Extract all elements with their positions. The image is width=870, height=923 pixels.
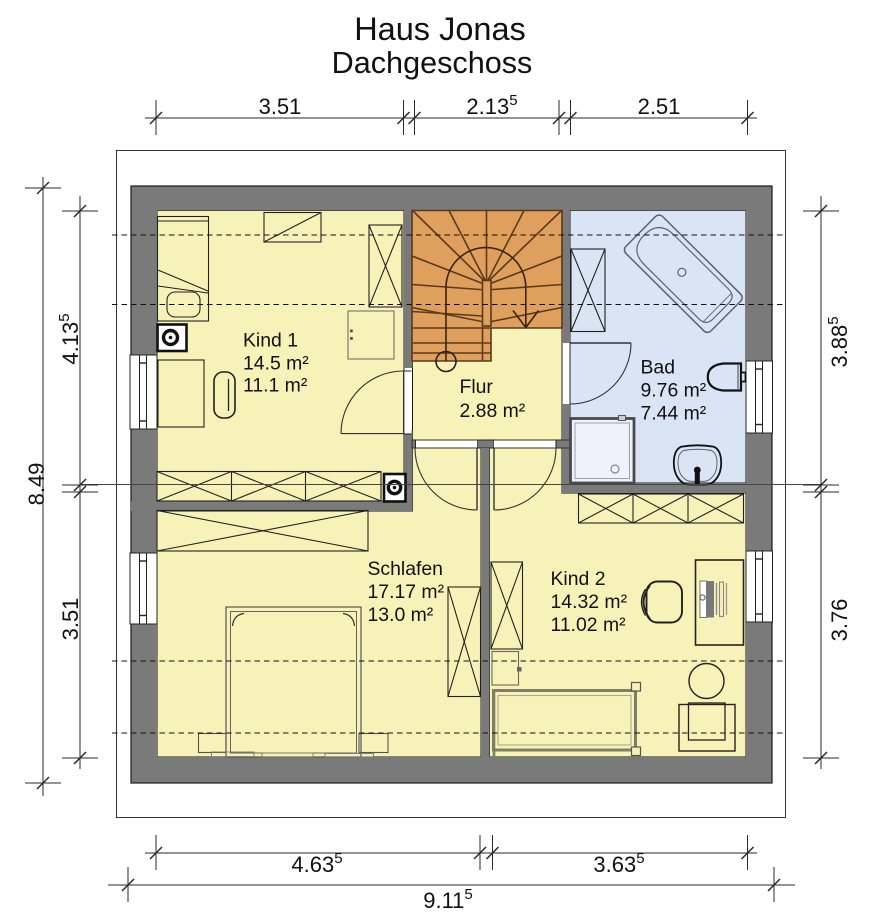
svg-text:Kind 2: Kind 2 (551, 568, 606, 590)
svg-text:7.44 m²: 7.44 m² (641, 403, 707, 425)
svg-text:17.17 m²: 17.17 m² (368, 581, 445, 603)
svg-text:9.76 m²: 9.76 m² (641, 380, 707, 402)
svg-text:Dachgeschoss: Dachgeschoss (332, 46, 533, 80)
svg-text:Haus Jonas: Haus Jonas (354, 11, 526, 47)
svg-text:Kind 1: Kind 1 (243, 330, 298, 352)
svg-text:Schlafen: Schlafen (368, 558, 443, 580)
svg-text:14.5 m²: 14.5 m² (243, 353, 309, 375)
svg-text:13.0 m²: 13.0 m² (368, 604, 434, 626)
svg-text:Bad: Bad (641, 357, 676, 379)
svg-text:3.51: 3.51 (58, 598, 83, 641)
svg-text:2.88 m²: 2.88 m² (460, 400, 526, 422)
svg-text:8.49: 8.49 (24, 463, 49, 506)
svg-text:11.1 m²: 11.1 m² (243, 375, 308, 397)
svg-text:3.76: 3.76 (827, 599, 852, 642)
svg-text:2.51: 2.51 (638, 94, 681, 119)
svg-text:3.51: 3.51 (259, 94, 302, 119)
svg-text:Flur: Flur (460, 376, 494, 398)
svg-text:14.32 m²: 14.32 m² (551, 591, 628, 613)
svg-text:11.02 m²: 11.02 m² (551, 614, 627, 636)
